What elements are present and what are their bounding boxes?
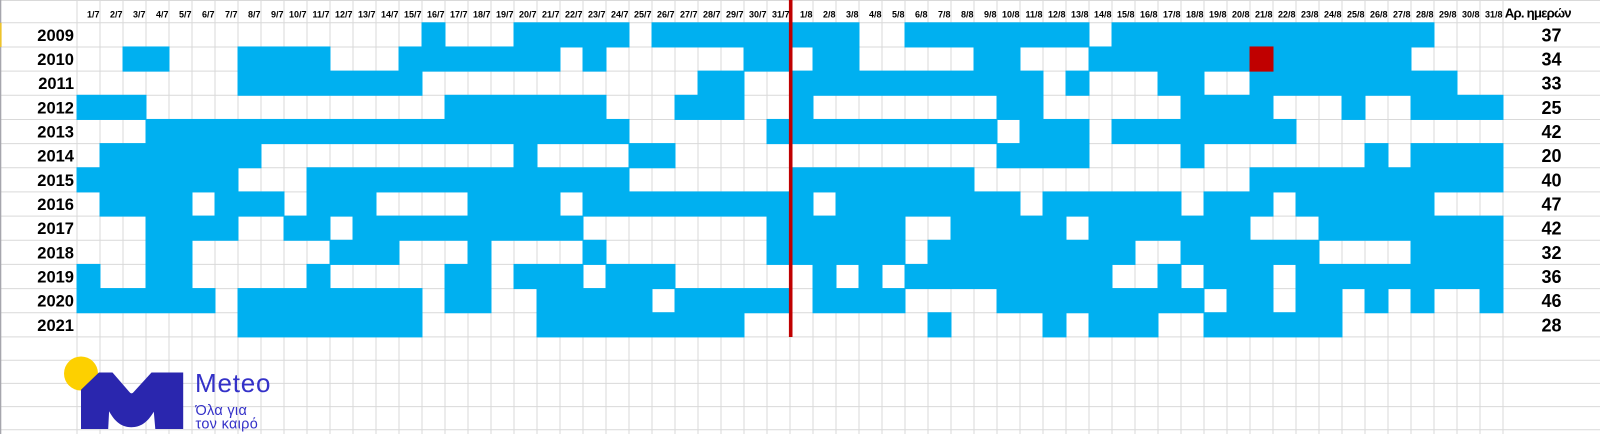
svg-text:2020: 2020 bbox=[37, 293, 74, 311]
svg-text:12/7: 12/7 bbox=[335, 10, 353, 20]
svg-text:27/8: 27/8 bbox=[1393, 10, 1411, 20]
svg-text:9/7: 9/7 bbox=[271, 10, 284, 20]
svg-text:13/7: 13/7 bbox=[358, 10, 376, 20]
svg-text:20/8: 20/8 bbox=[1232, 10, 1250, 20]
svg-text:2015: 2015 bbox=[37, 172, 74, 190]
svg-text:15/8: 15/8 bbox=[1117, 10, 1135, 20]
svg-text:40: 40 bbox=[1541, 170, 1561, 190]
svg-text:5/8: 5/8 bbox=[892, 10, 905, 20]
svg-text:16/8: 16/8 bbox=[1140, 10, 1158, 20]
svg-text:30/8: 30/8 bbox=[1462, 10, 1480, 20]
svg-text:15/7: 15/7 bbox=[404, 10, 422, 20]
svg-text:17/8: 17/8 bbox=[1163, 10, 1181, 20]
svg-text:25/7: 25/7 bbox=[634, 10, 652, 20]
svg-text:7/7: 7/7 bbox=[225, 10, 238, 20]
svg-text:25: 25 bbox=[1541, 98, 1561, 118]
svg-text:2/7: 2/7 bbox=[110, 10, 123, 20]
svg-text:6/8: 6/8 bbox=[915, 10, 928, 20]
svg-text:20/7: 20/7 bbox=[519, 10, 537, 20]
svg-text:42: 42 bbox=[1541, 219, 1561, 239]
svg-text:25/8: 25/8 bbox=[1347, 10, 1365, 20]
svg-text:10/8: 10/8 bbox=[1002, 10, 1020, 20]
svg-text:31/8: 31/8 bbox=[1485, 10, 1503, 20]
svg-text:19/7: 19/7 bbox=[496, 10, 514, 20]
svg-text:Meteo: Meteo bbox=[195, 368, 271, 398]
svg-text:22/8: 22/8 bbox=[1278, 10, 1296, 20]
svg-text:2016: 2016 bbox=[37, 196, 74, 214]
svg-text:29/7: 29/7 bbox=[726, 10, 744, 20]
svg-text:9/8: 9/8 bbox=[984, 10, 997, 20]
svg-text:46: 46 bbox=[1541, 291, 1561, 311]
svg-text:13/8: 13/8 bbox=[1071, 10, 1089, 20]
svg-text:22/7: 22/7 bbox=[565, 10, 583, 20]
svg-text:24/7: 24/7 bbox=[611, 10, 629, 20]
svg-text:28: 28 bbox=[1541, 315, 1561, 335]
svg-text:32: 32 bbox=[1541, 243, 1561, 263]
svg-text:7/8: 7/8 bbox=[938, 10, 951, 20]
svg-text:18/7: 18/7 bbox=[473, 10, 491, 20]
svg-text:36: 36 bbox=[1541, 267, 1561, 287]
svg-text:20: 20 bbox=[1541, 146, 1561, 166]
svg-text:26/7: 26/7 bbox=[657, 10, 675, 20]
svg-text:30/7: 30/7 bbox=[749, 10, 767, 20]
svg-text:1/7: 1/7 bbox=[87, 10, 100, 20]
svg-text:23/8: 23/8 bbox=[1301, 10, 1319, 20]
svg-text:2021: 2021 bbox=[37, 317, 74, 335]
svg-text:τον καιρό: τον καιρό bbox=[196, 417, 259, 433]
svg-text:21/8: 21/8 bbox=[1255, 10, 1273, 20]
svg-text:21/7: 21/7 bbox=[542, 10, 560, 20]
svg-text:2019: 2019 bbox=[37, 269, 74, 287]
svg-text:37: 37 bbox=[1541, 25, 1561, 45]
svg-text:4/7: 4/7 bbox=[156, 10, 169, 20]
svg-text:18/8: 18/8 bbox=[1186, 10, 1204, 20]
svg-text:11/8: 11/8 bbox=[1025, 10, 1042, 20]
svg-text:2009: 2009 bbox=[37, 27, 74, 45]
svg-text:2017: 2017 bbox=[37, 220, 74, 238]
svg-text:2018: 2018 bbox=[37, 244, 74, 262]
svg-text:31/7: 31/7 bbox=[772, 10, 790, 20]
svg-text:16/7: 16/7 bbox=[427, 10, 445, 20]
svg-text:Αρ. ημερών: Αρ. ημερών bbox=[1505, 5, 1571, 20]
svg-text:8/7: 8/7 bbox=[248, 10, 261, 20]
svg-text:10/7: 10/7 bbox=[289, 10, 307, 20]
svg-text:34: 34 bbox=[1541, 50, 1561, 70]
svg-text:5/7: 5/7 bbox=[179, 10, 192, 20]
svg-text:14/7: 14/7 bbox=[381, 10, 399, 20]
svg-text:28/7: 28/7 bbox=[703, 10, 721, 20]
svg-text:14/8: 14/8 bbox=[1094, 10, 1112, 20]
svg-text:42: 42 bbox=[1541, 122, 1561, 142]
svg-text:33: 33 bbox=[1541, 74, 1561, 94]
svg-text:2013: 2013 bbox=[37, 124, 74, 142]
svg-text:3/7: 3/7 bbox=[133, 10, 146, 20]
svg-text:2010: 2010 bbox=[37, 51, 74, 69]
svg-text:19/8: 19/8 bbox=[1209, 10, 1227, 20]
svg-text:8/8: 8/8 bbox=[961, 10, 974, 20]
svg-text:26/8: 26/8 bbox=[1370, 10, 1388, 20]
svg-text:47: 47 bbox=[1541, 195, 1561, 215]
svg-text:3/8: 3/8 bbox=[846, 10, 859, 20]
svg-text:4/8: 4/8 bbox=[869, 10, 882, 20]
svg-text:28/8: 28/8 bbox=[1416, 10, 1434, 20]
svg-text:2014: 2014 bbox=[37, 148, 75, 166]
svg-text:29/8: 29/8 bbox=[1439, 10, 1457, 20]
svg-text:12/8: 12/8 bbox=[1048, 10, 1066, 20]
svg-text:2/8: 2/8 bbox=[823, 10, 836, 20]
svg-text:24/8: 24/8 bbox=[1324, 10, 1342, 20]
svg-text:23/7: 23/7 bbox=[588, 10, 606, 20]
svg-text:2011: 2011 bbox=[38, 75, 74, 93]
svg-text:27/7: 27/7 bbox=[680, 10, 698, 20]
svg-text:2012: 2012 bbox=[37, 99, 74, 117]
svg-text:17/7: 17/7 bbox=[450, 10, 468, 20]
svg-text:6/7: 6/7 bbox=[202, 10, 215, 20]
svg-text:11/7: 11/7 bbox=[312, 10, 329, 20]
svg-text:1/8: 1/8 bbox=[800, 10, 813, 20]
